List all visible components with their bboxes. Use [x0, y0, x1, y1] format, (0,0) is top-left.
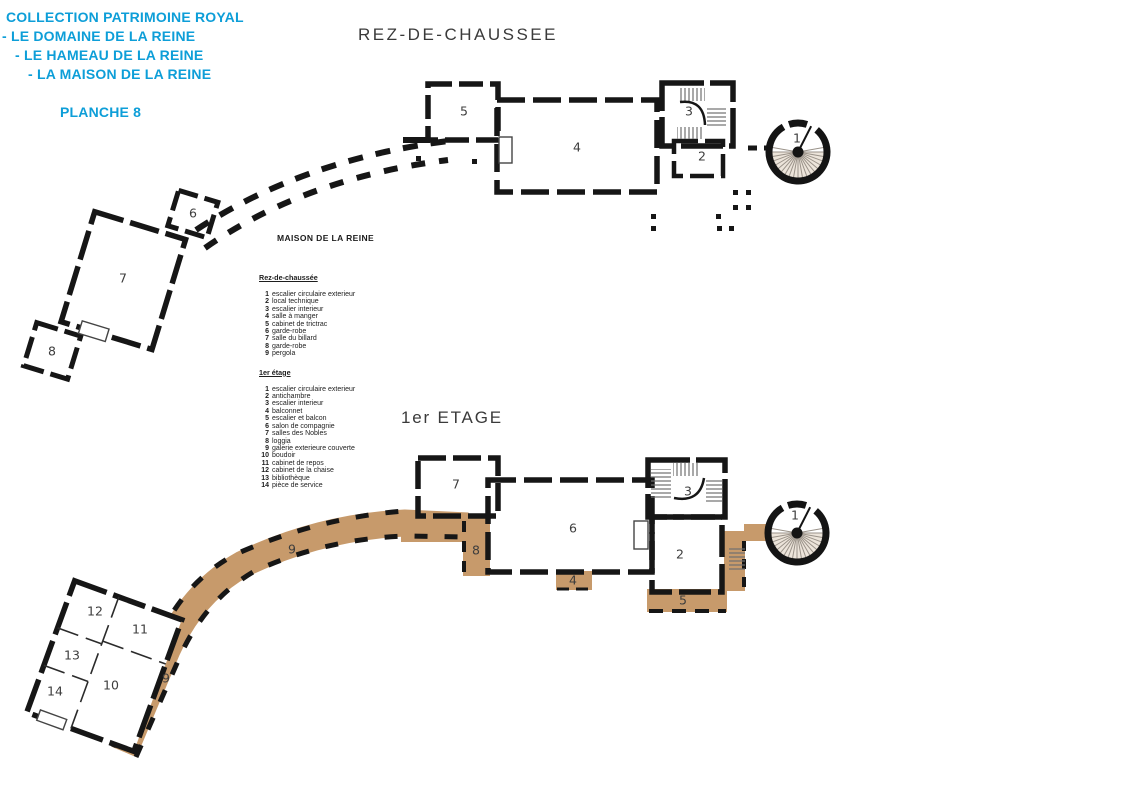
room-label-14: 14	[47, 684, 63, 699]
floor-plans-drawing: 12345678	[0, 0, 1123, 795]
room-label-5: 5	[460, 104, 468, 119]
bay-window	[78, 321, 109, 342]
room-label-6: 6	[189, 206, 197, 221]
stair-run	[706, 478, 722, 504]
pergola-arc-outer	[196, 140, 456, 230]
room-antichambre	[652, 517, 722, 592]
room-label-3: 3	[685, 104, 693, 119]
room-label-7: 7	[452, 477, 460, 492]
stair-run	[673, 463, 700, 476]
room-label-9: 9	[162, 671, 170, 686]
room-label-4: 4	[573, 140, 581, 155]
room-label-2: 2	[698, 149, 706, 164]
stair-run	[707, 107, 726, 126]
room-label-1: 1	[793, 131, 801, 146]
room-label-12: 12	[87, 604, 103, 619]
stair-run	[651, 469, 671, 500]
first-floor-plan: 12345678991011121314	[25, 458, 826, 757]
pergola-arc-inner	[205, 160, 448, 248]
fireplace-niche	[634, 521, 648, 549]
room-label-8: 8	[472, 543, 480, 558]
room-label-2: 2	[676, 547, 684, 562]
room-label-9: 9	[288, 542, 296, 557]
fireplace-niche	[499, 137, 512, 163]
room-label-1: 1	[791, 508, 799, 523]
stair-run	[678, 88, 705, 101]
room-label-10: 10	[103, 678, 119, 693]
stair-run	[677, 127, 704, 139]
room-label-5: 5	[679, 593, 687, 608]
room-label-6: 6	[569, 521, 577, 536]
room-label-3: 3	[684, 484, 692, 499]
stair-run	[729, 546, 745, 571]
ground-floor-plan: 12345678	[24, 83, 827, 406]
gallery-tan-areas	[124, 514, 768, 752]
room-label-4: 4	[569, 573, 577, 588]
room-label-7: 7	[119, 271, 127, 286]
scanned-plate: { "header": { "line1": "COLLECTION PATRI…	[0, 0, 1123, 795]
room-label-8: 8	[48, 344, 56, 359]
room-label-13: 13	[64, 648, 80, 663]
room-label-11: 11	[132, 622, 148, 637]
